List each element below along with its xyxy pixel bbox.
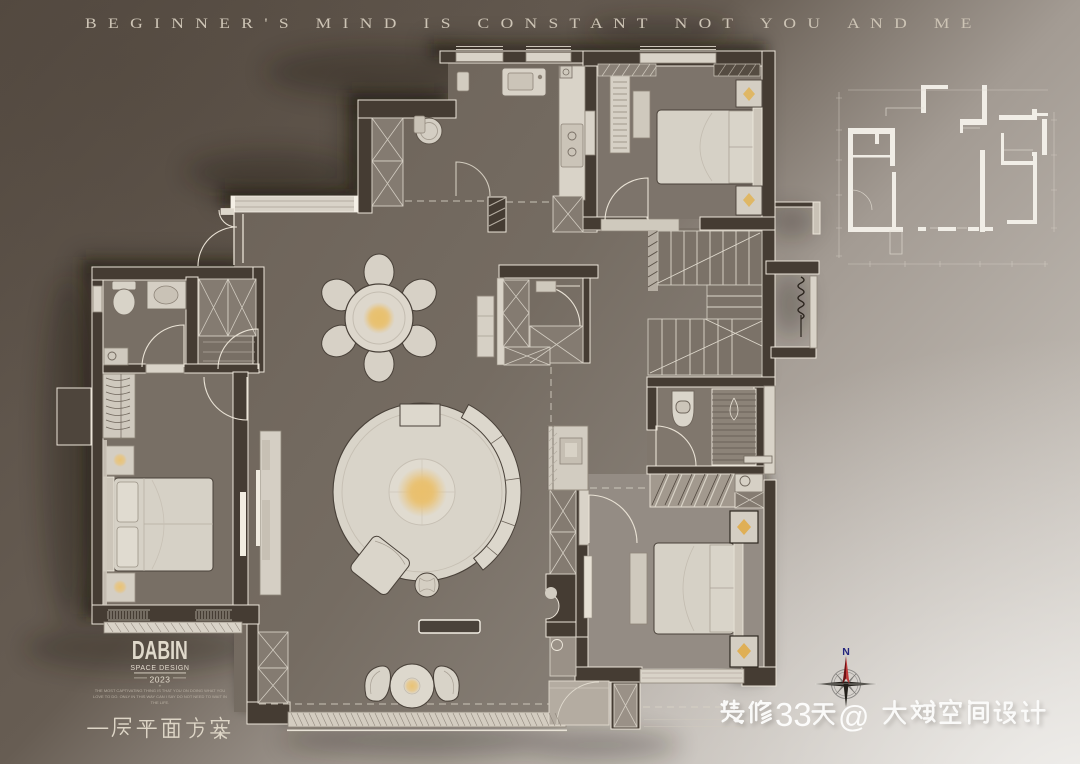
svg-text:LOVE TO DO. ONLY IN THIS WAY C: LOVE TO DO. ONLY IN THIS WAY CAN I SAY D… [93,694,227,699]
svg-text:@: @ [838,699,869,734]
svg-text:SPACE DESIGN: SPACE DESIGN [130,665,189,672]
svg-text:B E G I N N E R ' S M I N D: B E G I N N E R ' S M I N D I S C O N S … [85,16,975,32]
svg-text:DABIN: DABIN [132,636,188,665]
svg-text:THE LIFE.: THE LIFE. [151,700,170,705]
svg-text:N: N [842,646,850,658]
svg-text:THE MOST CAPTIVATING THING IS: THE MOST CAPTIVATING THING IS THAT YOU O… [95,688,226,693]
svg-text:33: 33 [775,696,812,733]
